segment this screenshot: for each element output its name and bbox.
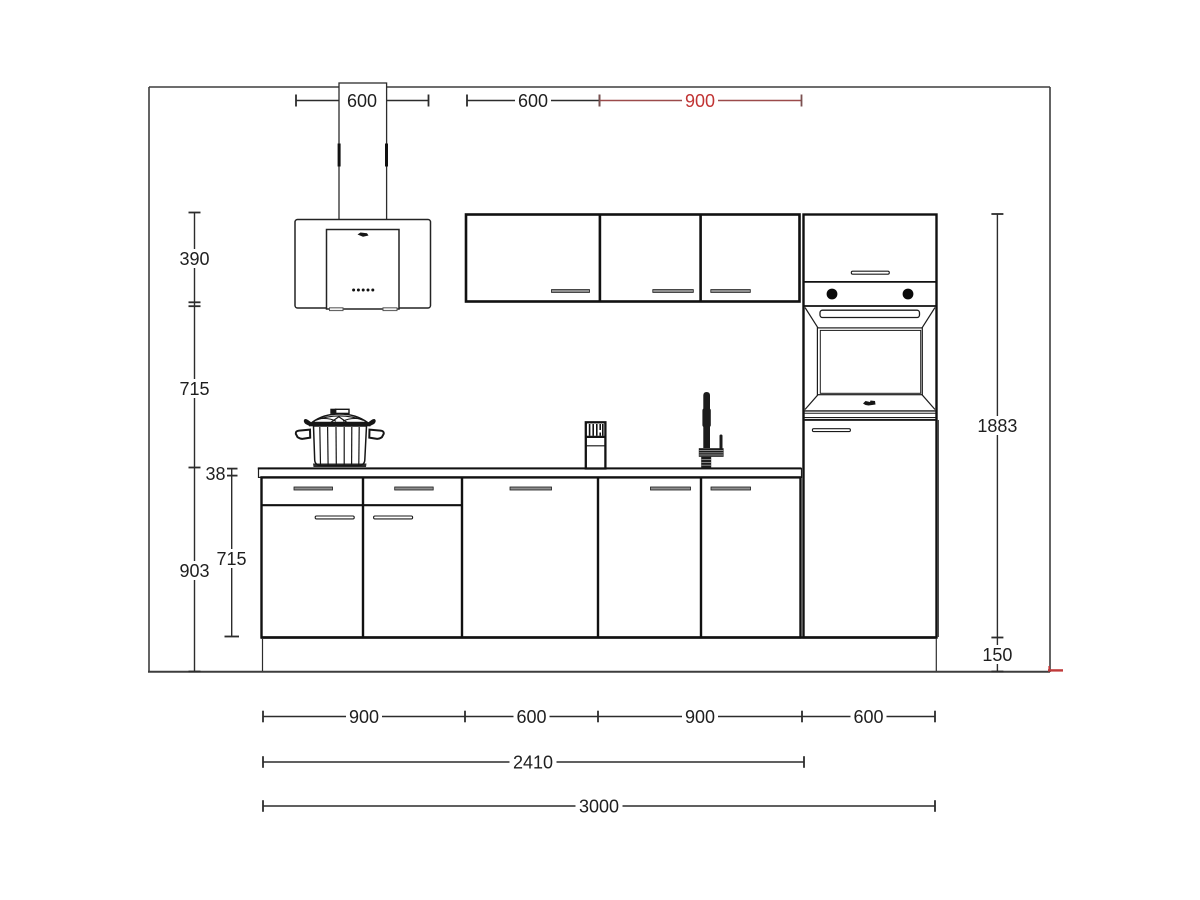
svg-text:600: 600 bbox=[516, 707, 546, 727]
svg-text:900: 900 bbox=[685, 707, 715, 727]
svg-text:715: 715 bbox=[179, 379, 209, 399]
svg-text:390: 390 bbox=[179, 249, 209, 269]
svg-text:38: 38 bbox=[205, 464, 225, 484]
svg-text:1883: 1883 bbox=[977, 416, 1017, 436]
svg-text:600: 600 bbox=[518, 91, 548, 111]
svg-text:600: 600 bbox=[853, 707, 883, 727]
svg-text:900: 900 bbox=[349, 707, 379, 727]
svg-text:600: 600 bbox=[347, 91, 377, 111]
svg-text:3000: 3000 bbox=[579, 797, 619, 817]
svg-text:2410: 2410 bbox=[513, 753, 553, 773]
svg-text:150: 150 bbox=[982, 645, 1012, 665]
svg-text:900: 900 bbox=[685, 91, 715, 111]
svg-text:903: 903 bbox=[179, 561, 209, 581]
svg-text:715: 715 bbox=[216, 549, 246, 569]
